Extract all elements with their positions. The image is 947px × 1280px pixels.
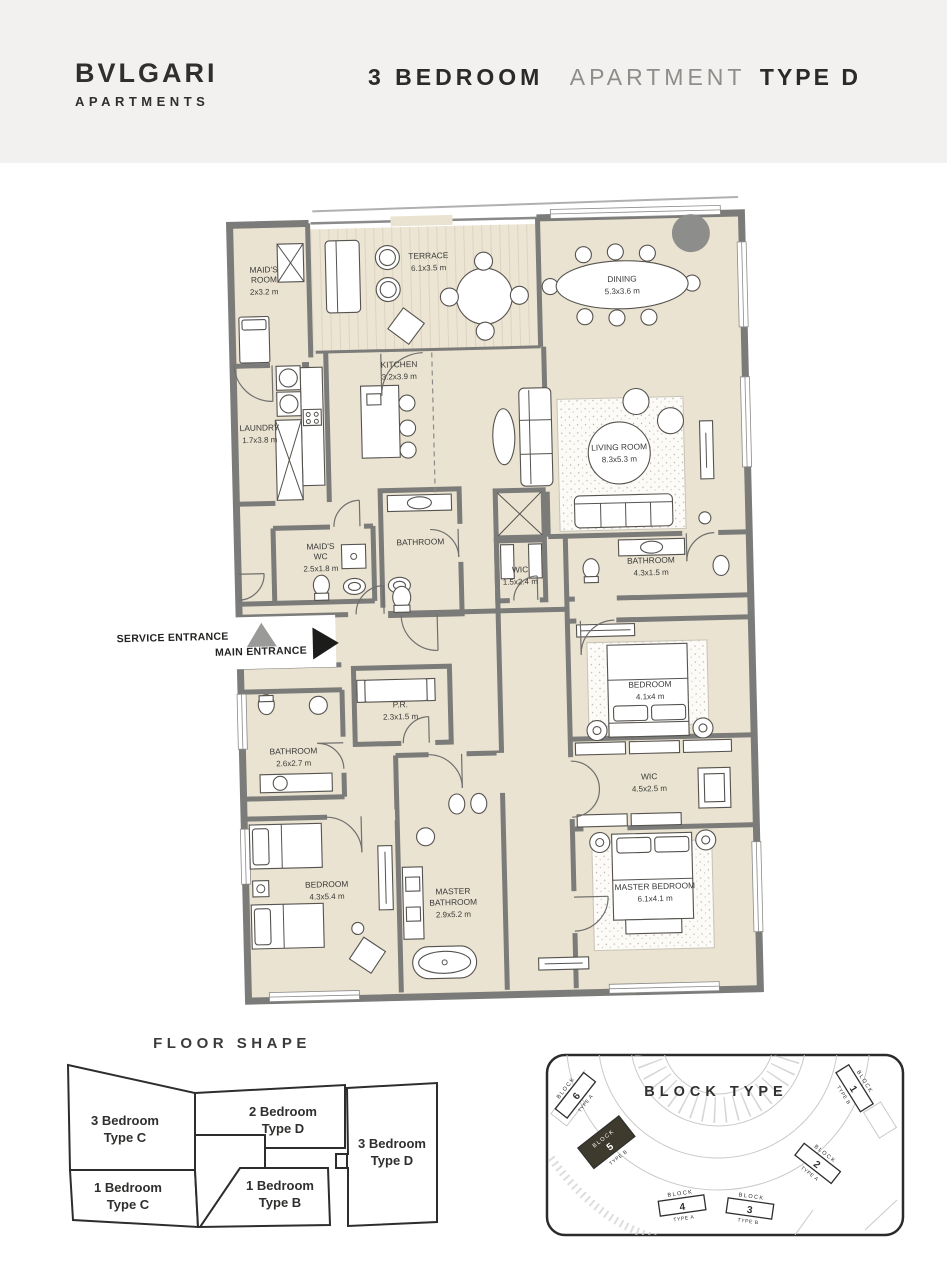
svg-text:WIC: WIC [641, 771, 658, 781]
page: BVLGARI APARTMENTS 3 BEDROOM APARTMENT T… [0, 0, 947, 1280]
svg-text:TERRACE: TERRACE [408, 250, 449, 261]
svg-text:MAID'S: MAID'S [306, 541, 335, 552]
svg-text:4.5x2.5 m: 4.5x2.5 m [632, 784, 668, 794]
block-type-title: BLOCK TYPE [644, 1084, 787, 1100]
svg-text:Type B: Type B [259, 1195, 301, 1210]
svg-text:2.6x2.7 m: 2.6x2.7 m [276, 759, 312, 769]
svg-text:1.5x2.4 m: 1.5x2.4 m [503, 577, 539, 587]
brand-logo: BVLGARI APARTMENTS [75, 58, 218, 109]
svg-text:3.2x3.9 m: 3.2x3.9 m [382, 372, 418, 382]
room-label-maids-room: MAID'S ROOM 2x3.2 m [249, 264, 279, 297]
svg-text:P.R.: P.R. [393, 699, 408, 709]
svg-text:Type C: Type C [107, 1197, 150, 1212]
service-entrance-label: SERVICE ENTRANCE [117, 631, 229, 646]
svg-text:2.3x1.5 m: 2.3x1.5 m [383, 712, 419, 722]
title-bedrooms: 3 BEDROOM [368, 64, 543, 90]
svg-text:DINING: DINING [607, 273, 637, 284]
svg-text:Type D: Type D [371, 1153, 413, 1168]
svg-text:KITCHEN: KITCHEN [381, 359, 418, 370]
floor-plan: SERVICE ENTRANCE MAIN ENTRANCE MAID'S RO… [100, 193, 790, 1038]
floor-shape-corridor-tab [336, 1154, 347, 1168]
svg-text:4.3x5.4 m: 4.3x5.4 m [309, 892, 345, 902]
svg-text:WC: WC [314, 551, 328, 561]
brand-name: BVLGARI [75, 58, 218, 89]
svg-text:LAUNDRY: LAUNDRY [239, 422, 280, 433]
svg-text:5.3x3.6 m: 5.3x3.6 m [605, 286, 641, 296]
svg-text:BATHROOM: BATHROOM [396, 536, 444, 547]
svg-text:Type C: Type C [104, 1130, 147, 1145]
svg-text:BEDROOM: BEDROOM [628, 679, 672, 690]
svg-text:1.7x3.8 m: 1.7x3.8 m [242, 435, 278, 445]
floor-shape-title: FLOOR SHAPE [153, 1035, 311, 1052]
title-type: TYPE D [760, 64, 861, 90]
svg-text:BATHROOM: BATHROOM [429, 897, 477, 908]
title-apartment: APARTMENT [570, 64, 746, 90]
svg-text:BEDROOM: BEDROOM [305, 879, 349, 890]
furniture-laundry [274, 366, 303, 501]
svg-text:MAID'S: MAID'S [249, 264, 278, 275]
svg-text:3 Bedroom: 3 Bedroom [358, 1136, 426, 1151]
block-type-diagram: BLOCK 6 TYPE A BLOCK 5 TYPE B BLOCK 4 TY… [545, 1050, 907, 1240]
svg-text:BATHROOM: BATHROOM [627, 555, 675, 566]
svg-text:ROOM: ROOM [251, 274, 277, 285]
main-entrance-label: MAIN ENTRANCE [215, 645, 307, 659]
svg-text:4.3x1.5 m: 4.3x1.5 m [634, 568, 670, 578]
svg-text:WIC: WIC [512, 564, 529, 574]
svg-text:1 Bedroom: 1 Bedroom [94, 1180, 162, 1195]
brand-sub: APARTMENTS [75, 94, 218, 109]
svg-text:2.5x1.8 m: 2.5x1.8 m [303, 564, 339, 574]
svg-text:4.1x4 m: 4.1x4 m [636, 692, 665, 702]
svg-text:8.3x5.3 m: 8.3x5.3 m [602, 454, 638, 464]
svg-text:Type D: Type D [262, 1121, 304, 1136]
svg-text:2.9x5.2 m: 2.9x5.2 m [436, 910, 472, 920]
svg-text:BATHROOM: BATHROOM [269, 745, 317, 756]
svg-text:2 Bedroom: 2 Bedroom [249, 1104, 317, 1119]
room-label-master-bathroom: MASTER BATHROOM 2.9x5.2 m [429, 886, 478, 920]
header-band: BVLGARI APARTMENTS 3 BEDROOM APARTMENT T… [0, 0, 947, 163]
svg-text:MASTER: MASTER [435, 886, 470, 897]
floor-shape-diagram: FLOOR SHAPE 3 Bedroom Type C 2 Bedroom T… [40, 1020, 460, 1260]
svg-text:2x3.2 m: 2x3.2 m [250, 287, 279, 297]
svg-text:6.1x4.1 m: 6.1x4.1 m [637, 894, 673, 904]
room-label-bathroom-guest: BATHROOM [396, 536, 444, 547]
page-title: 3 BEDROOM APARTMENT TYPE D [368, 64, 861, 91]
svg-text:MASTER BEDROOM: MASTER BEDROOM [614, 880, 695, 892]
svg-text:3 Bedroom: 3 Bedroom [91, 1113, 159, 1128]
svg-text:1 Bedroom: 1 Bedroom [246, 1178, 314, 1193]
svg-text:6.1x3.5 m: 6.1x3.5 m [411, 263, 447, 273]
svg-text:LIVING ROOM: LIVING ROOM [591, 441, 647, 452]
